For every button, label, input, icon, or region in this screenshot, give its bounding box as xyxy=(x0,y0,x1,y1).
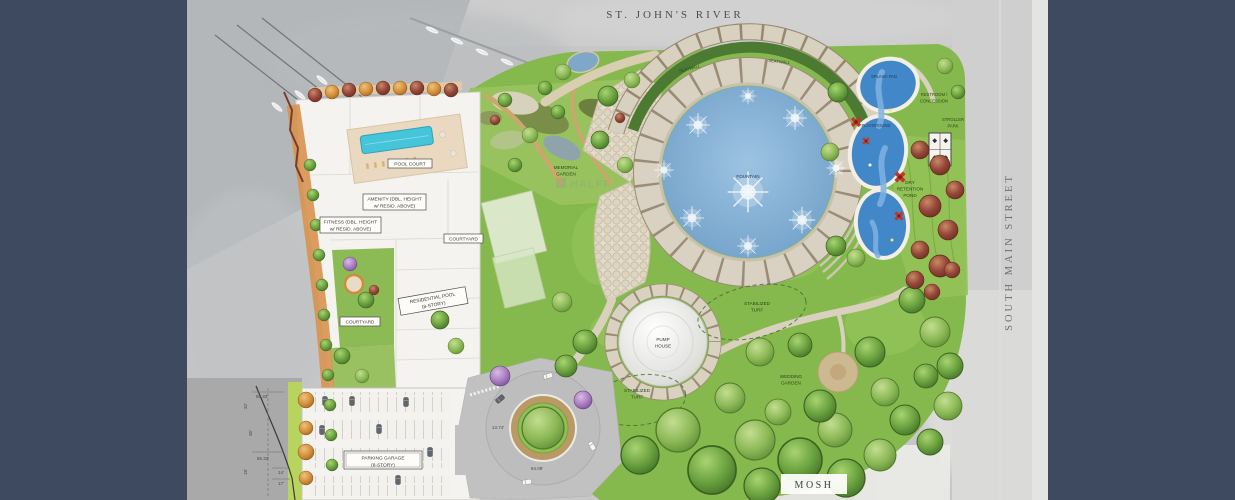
dim-18: 18' xyxy=(243,469,248,475)
svg-text:COURTYARD: COURTYARD xyxy=(346,319,375,324)
label-stabilized-turf-lower-1: STABILIZED xyxy=(624,388,651,393)
street-label-south-main-street: SOUTH MAIN STREET xyxy=(1004,173,1015,331)
label-pump-house-1: PUMP xyxy=(656,337,669,342)
label-stabilized-turf-upper-2: TURF xyxy=(751,308,763,313)
dim-64-08: 64.08' xyxy=(531,466,543,471)
label-dry-retention-2: RETENTION xyxy=(897,187,924,192)
label-playground: PLAYGROUND xyxy=(861,123,890,128)
dim-32: 32' xyxy=(243,403,248,409)
right-margin-bar xyxy=(1048,0,1235,500)
svg-text:(8-STORY): (8-STORY) xyxy=(371,463,395,469)
label-courtyard-upper: COURTYARD xyxy=(444,234,483,243)
label-wedding-garden-2: GARDEN xyxy=(781,381,801,386)
roundabout xyxy=(455,358,622,500)
label-restroom-1: RESTROOM / xyxy=(921,92,948,97)
label-splash-pad: SPLASH PAD xyxy=(871,74,897,79)
west-road xyxy=(186,378,302,500)
dim-35: 35' xyxy=(248,430,253,436)
label-amenity: AMENITY (DBL. HEIGHT w/ RESID. ABOVE) xyxy=(363,194,426,210)
street-label-st-johns-river: ST. JOHN'S RIVER xyxy=(606,9,743,21)
watermark-text: HALFF xyxy=(570,179,611,191)
label-stroller-park-1: STROLLER xyxy=(942,117,964,122)
svg-text:FITNESS (DBL. HEIGHT: FITNESS (DBL. HEIGHT xyxy=(324,220,377,226)
label-memorial-garden-1: MEMORIAL xyxy=(554,165,579,170)
svg-text:w/ RESID. ABOVE): w/ RESID. ABOVE) xyxy=(330,227,372,233)
label-fountain: FOUNTAIN xyxy=(736,174,759,179)
pump-house-dome xyxy=(611,290,715,394)
svg-text:COURTYARD: COURTYARD xyxy=(449,236,478,241)
dim-14: 14' xyxy=(278,470,284,475)
label-stroller-park-2: PARK xyxy=(947,124,958,129)
label-pool-court: POOL COURT xyxy=(388,159,432,168)
label-memorial-garden-2: GARDEN xyxy=(556,172,576,177)
label-parking-garage: PARKING GARAGE (8-STORY) xyxy=(344,451,422,469)
mosh-building-label: MOSH xyxy=(781,474,847,494)
label-stabilized-turf-upper-1: STABILIZED xyxy=(744,301,771,306)
mosh-label-text: MOSH xyxy=(795,480,834,491)
label-restroom-2: CONCESSION xyxy=(920,99,948,104)
plan-slide-canvas: HALFF ST. JOHN'S RIVER SOUTH MAIN STREET… xyxy=(0,0,1235,500)
label-courtyard-lower: COURTYARD xyxy=(340,317,380,326)
label-wedding-garden-1: WEDDING xyxy=(780,374,803,379)
label-dry-retention-1: DRY xyxy=(905,180,915,185)
left-margin-bar xyxy=(0,0,187,500)
wedding-garden-clearing xyxy=(818,352,858,392)
dim-55-33-bottom: 55.33' xyxy=(257,456,269,461)
dim-13-74: 13.74' xyxy=(492,425,504,430)
svg-text:POOL COURT: POOL COURT xyxy=(394,161,426,167)
svg-text:PARKING GARAGE: PARKING GARAGE xyxy=(361,456,404,462)
dim-55-33-top: 55.33' xyxy=(256,394,268,399)
svg-text:AMENITY (DBL. HEIGHT: AMENITY (DBL. HEIGHT xyxy=(367,197,421,203)
label-dry-retention-3: POND xyxy=(903,193,917,198)
svg-text:w/ RESID. ABOVE): w/ RESID. ABOVE) xyxy=(374,204,416,210)
courtyard-fountain xyxy=(345,275,363,293)
dim-17: 17' xyxy=(278,481,284,486)
label-fitness: FITNESS (DBL. HEIGHT w/ RESID. ABOVE) xyxy=(320,217,381,233)
label-stabilized-turf-lower-2: TURF xyxy=(631,395,643,400)
label-pump-house-2: HOUSE xyxy=(655,344,671,349)
